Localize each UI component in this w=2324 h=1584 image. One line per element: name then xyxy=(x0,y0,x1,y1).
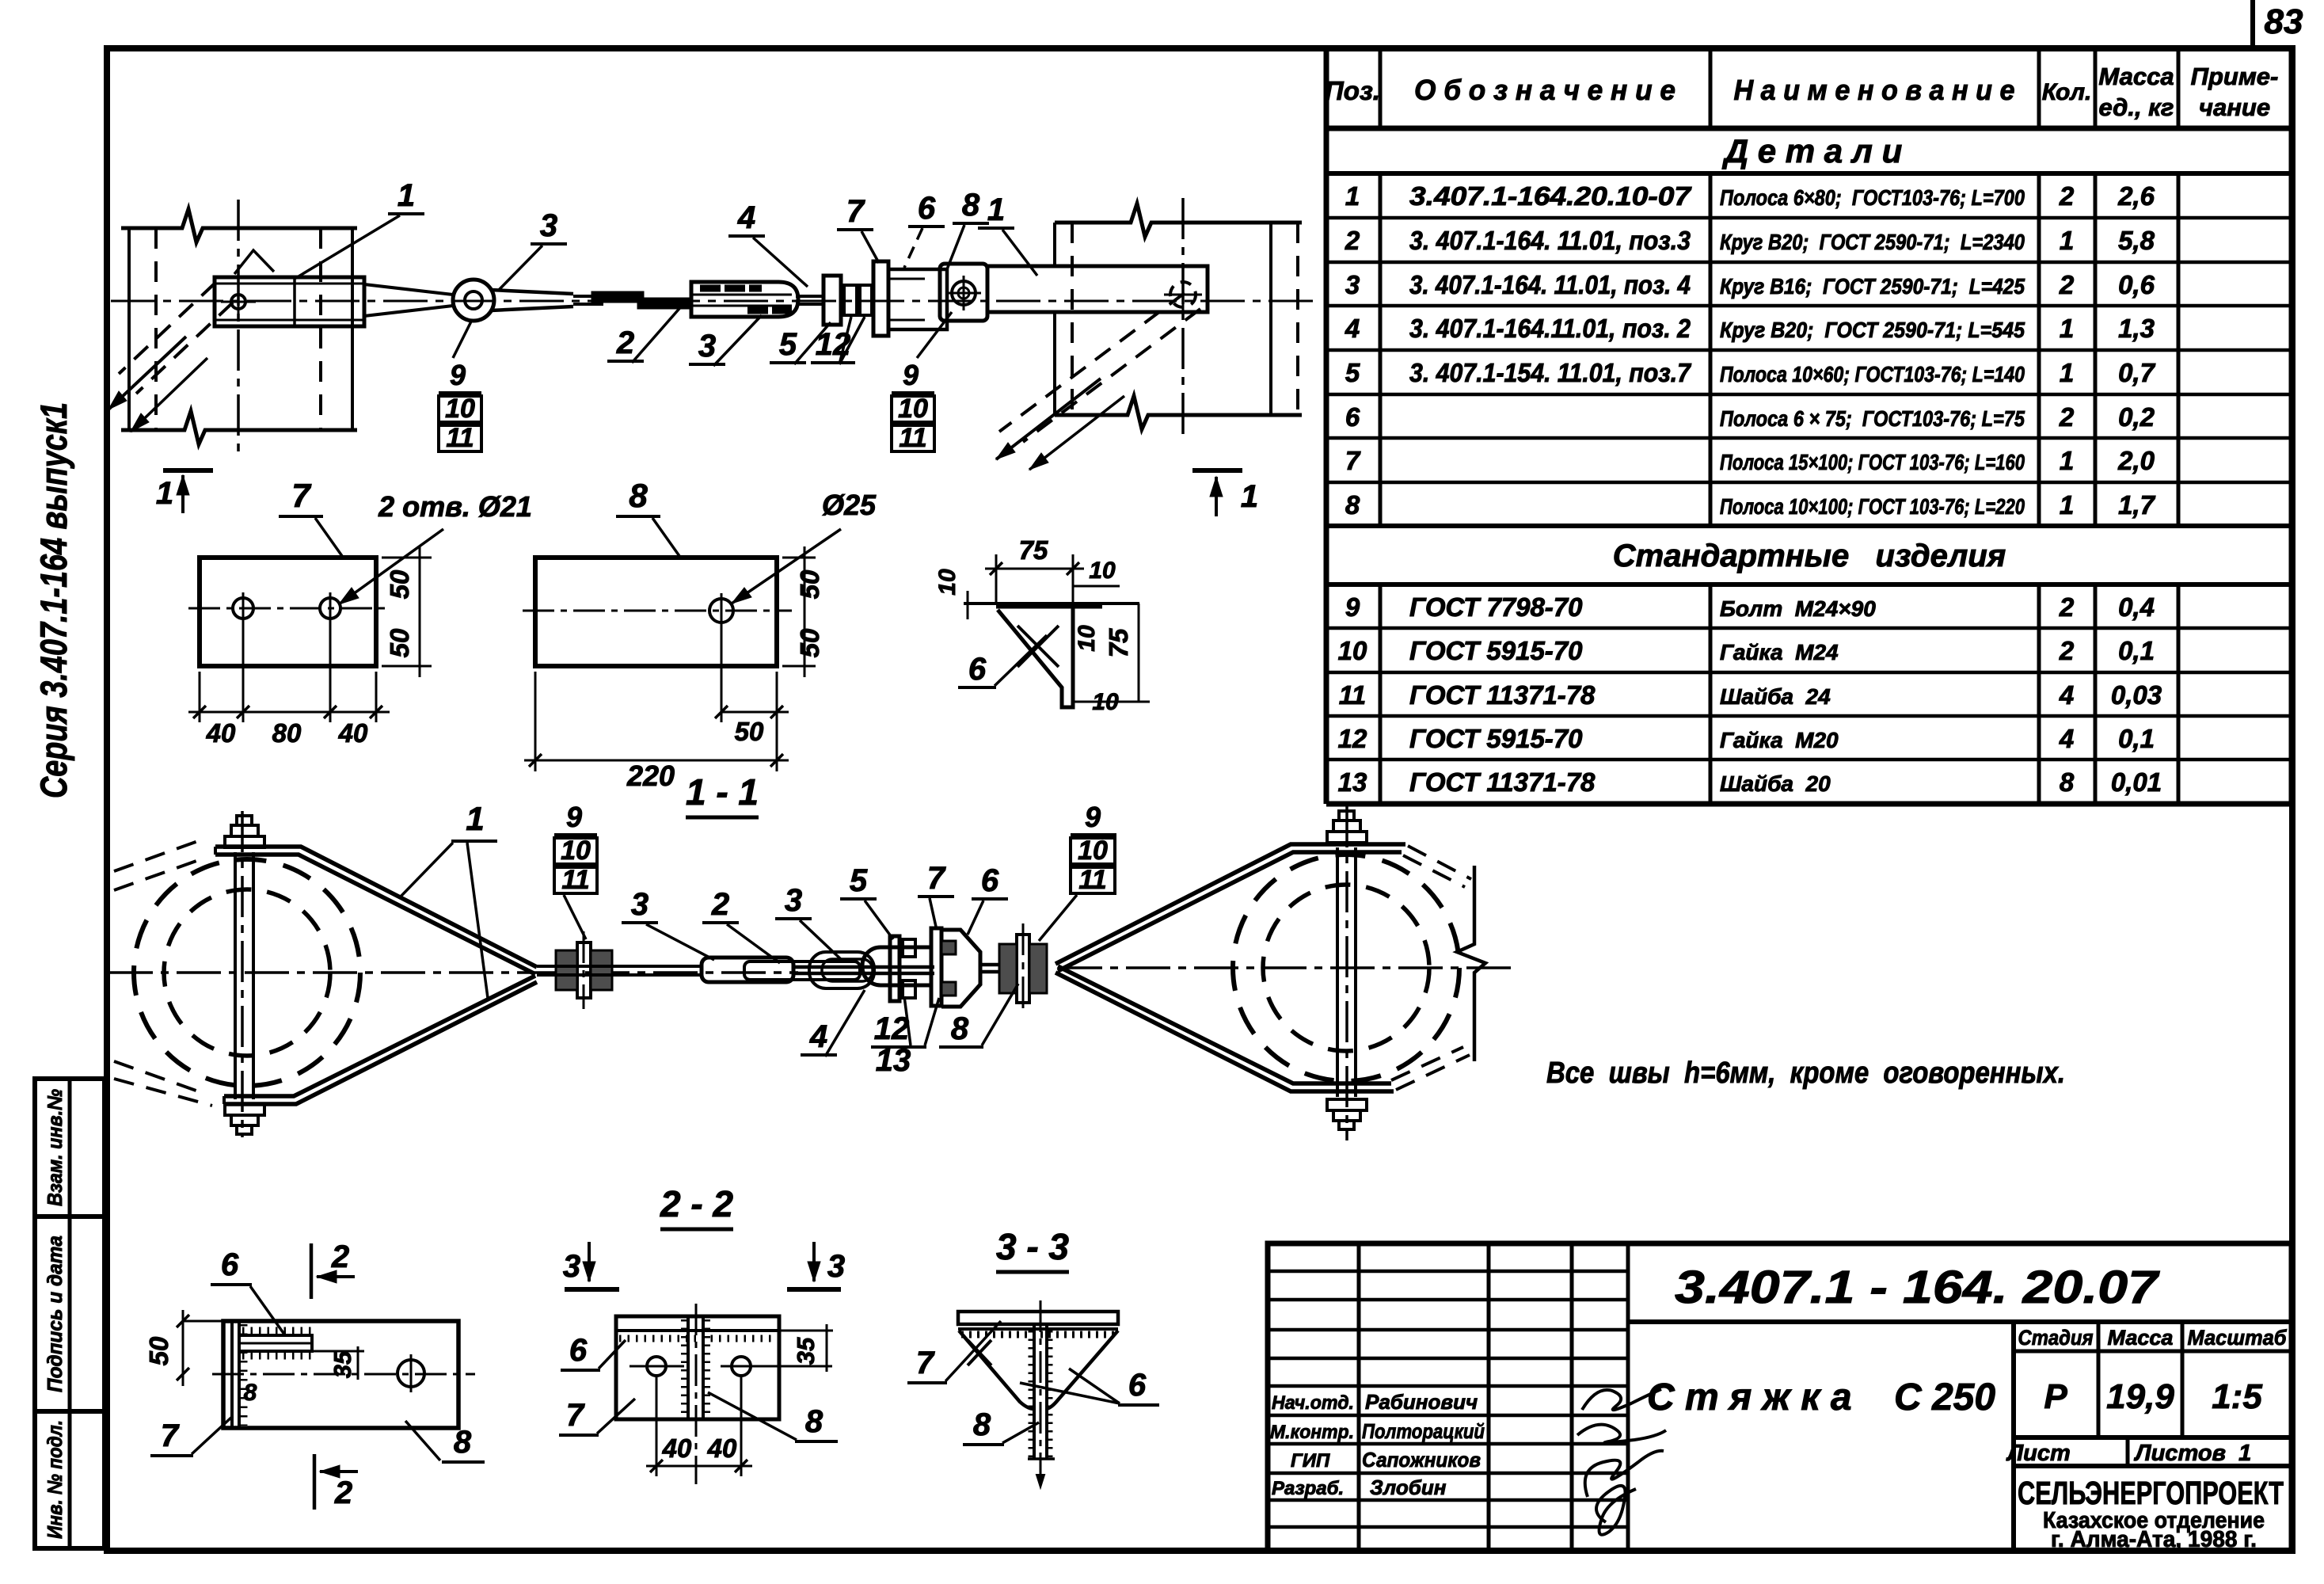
svg-text:5,8: 5,8 xyxy=(2118,226,2155,255)
svg-text:8: 8 xyxy=(951,1011,969,1046)
svg-text:10: 10 xyxy=(1338,636,1367,665)
svg-text:Гайка М20: Гайка М20 xyxy=(1720,728,1839,752)
svg-text:7: 7 xyxy=(846,194,865,229)
svg-text:3: 3 xyxy=(563,1249,580,1284)
svg-text:6: 6 xyxy=(1345,402,1360,432)
svg-text:3. 407.1-164. 11.01, поз. 4: 3. 407.1-164. 11.01, поз. 4 xyxy=(1409,270,1691,299)
svg-text:8: 8 xyxy=(1345,490,1360,520)
svg-text:С т я ж к а С 250: С т я ж к а С 250 xyxy=(1647,1376,1995,1418)
svg-text:Взам. инв.№: Взам. инв.№ xyxy=(43,1089,67,1206)
svg-text:35: 35 xyxy=(792,1337,820,1365)
svg-text:8: 8 xyxy=(629,477,648,514)
svg-text:3 - 3: 3 - 3 xyxy=(996,1226,1069,1267)
svg-text:8: 8 xyxy=(805,1404,823,1439)
svg-text:5: 5 xyxy=(850,863,868,898)
svg-text:1:5: 1:5 xyxy=(2212,1377,2262,1416)
svg-text:220: 220 xyxy=(626,760,675,792)
svg-text:11: 11 xyxy=(1339,680,1366,710)
svg-text:40: 40 xyxy=(338,718,368,748)
svg-text:8: 8 xyxy=(2060,767,2075,797)
svg-text:2 отв. Ø21: 2 отв. Ø21 xyxy=(378,490,532,523)
svg-text:6: 6 xyxy=(569,1333,588,1368)
svg-text:80: 80 xyxy=(272,718,302,748)
svg-text:3: 3 xyxy=(1345,270,1360,299)
svg-text:50: 50 xyxy=(795,628,824,657)
svg-text:83: 83 xyxy=(2265,2,2303,41)
svg-text:1 - 1: 1 - 1 xyxy=(686,771,759,813)
svg-text:50: 50 xyxy=(795,569,824,599)
svg-text:ГИП: ГИП xyxy=(1291,1450,1330,1472)
svg-text:Полторацкий: Полторацкий xyxy=(1362,1419,1485,1443)
svg-text:5: 5 xyxy=(779,327,797,362)
svg-text:50: 50 xyxy=(385,569,414,599)
svg-text:10: 10 xyxy=(1078,836,1108,866)
svg-text:О б о з н а ч е н и е: О б о з н а ч е н и е xyxy=(1414,74,1675,106)
svg-text:Круг В20; ГОСТ 2590-71; L=545: Круг В20; ГОСТ 2590-71; L=545 xyxy=(1720,318,2025,342)
svg-text:Полоса 6×80; ГОСТ103-76; L=70: Полоса 6×80; ГОСТ103-76; L=700 xyxy=(1720,185,2025,210)
svg-text:75: 75 xyxy=(1019,535,1048,565)
svg-text:1: 1 xyxy=(2060,314,2074,343)
svg-text:2: 2 xyxy=(331,1239,349,1274)
svg-text:Стандартные изделия: Стандартные изделия xyxy=(1613,539,2006,573)
svg-text:Стадия: Стадия xyxy=(2018,1326,2094,1350)
svg-text:0,01: 0,01 xyxy=(2111,767,2162,797)
svg-text:1: 1 xyxy=(2060,446,2074,475)
svg-text:2: 2 xyxy=(1345,226,1360,255)
svg-text:2: 2 xyxy=(711,887,729,922)
svg-text:3: 3 xyxy=(631,887,649,922)
svg-text:Рабинович: Рабинович xyxy=(1365,1390,1478,1414)
svg-text:13: 13 xyxy=(876,1043,911,1078)
svg-text:1: 1 xyxy=(987,192,1005,227)
svg-text:12: 12 xyxy=(874,1011,910,1046)
svg-text:35: 35 xyxy=(329,1350,356,1378)
svg-text:Круг В16; ГОСТ 2590-71; L=42: Круг В16; ГОСТ 2590-71; L=425 xyxy=(1720,274,2025,299)
svg-text:3: 3 xyxy=(827,1249,845,1284)
svg-text:2,6: 2,6 xyxy=(2117,181,2155,211)
svg-text:1,3: 1,3 xyxy=(2118,314,2155,343)
svg-text:2: 2 xyxy=(334,1475,352,1510)
svg-text:7: 7 xyxy=(291,477,311,514)
svg-text:10: 10 xyxy=(1074,625,1100,652)
svg-text:ед., кг: ед., кг xyxy=(2099,93,2174,121)
svg-text:ГОСТ 5915-70: ГОСТ 5915-70 xyxy=(1409,724,1583,753)
svg-text:7: 7 xyxy=(161,1418,180,1453)
svg-text:3. 407.1-164.11.01, поз. 2: 3. 407.1-164.11.01, поз. 2 xyxy=(1409,314,1691,343)
svg-text:2 - 2: 2 - 2 xyxy=(660,1183,733,1224)
svg-text:Д е т а л и: Д е т а л и xyxy=(1722,132,1903,169)
svg-text:3: 3 xyxy=(540,208,557,243)
svg-text:Масса: Масса xyxy=(2098,63,2174,90)
svg-text:Н а и м е н о в а н и е: Н а и м е н о в а н и е xyxy=(1734,74,2015,106)
svg-text:Разраб.: Разраб. xyxy=(1272,1478,1344,1499)
svg-text:6: 6 xyxy=(918,191,936,226)
svg-text:Злобин: Злобин xyxy=(1370,1475,1447,1499)
svg-text:40: 40 xyxy=(707,1434,737,1463)
svg-text:9: 9 xyxy=(1085,801,1101,833)
svg-text:3.407.1-164.20.10-07: 3.407.1-164.20.10-07 xyxy=(1409,181,1692,211)
svg-text:4: 4 xyxy=(737,200,755,235)
svg-text:Нач.отд.: Нач.отд. xyxy=(1272,1392,1354,1414)
svg-text:3. 407.1-164. 11.01, поз.3: 3. 407.1-164. 11.01, поз.3 xyxy=(1409,226,1691,255)
svg-text:3.407.1 - 164. 20.07: 3.407.1 - 164. 20.07 xyxy=(1675,1262,2160,1313)
svg-text:1: 1 xyxy=(2060,358,2074,387)
svg-text:Приме-: Приме- xyxy=(2191,63,2279,90)
svg-text:10: 10 xyxy=(898,394,928,424)
svg-text:12: 12 xyxy=(1338,724,1367,753)
svg-text:1: 1 xyxy=(397,178,415,213)
svg-text:4: 4 xyxy=(1345,314,1360,343)
svg-text:4: 4 xyxy=(2059,724,2074,753)
svg-text:8: 8 xyxy=(973,1407,991,1442)
svg-text:4: 4 xyxy=(2059,680,2074,710)
svg-text:Инв. № подл.: Инв. № подл. xyxy=(43,1420,67,1539)
svg-text:2: 2 xyxy=(2059,181,2075,211)
svg-text:11: 11 xyxy=(446,423,474,453)
svg-text:Кол.: Кол. xyxy=(2042,79,2092,105)
svg-text:Болт М24×90: Болт М24×90 xyxy=(1720,596,1876,621)
svg-text:1: 1 xyxy=(2060,490,2074,520)
svg-text:75: 75 xyxy=(1104,628,1133,657)
svg-text:Подпись и дата: Подпись и дата xyxy=(43,1236,67,1392)
svg-text:1: 1 xyxy=(2060,226,2074,255)
svg-text:6: 6 xyxy=(221,1247,239,1282)
svg-text:Шайба 20: Шайба 20 xyxy=(1720,771,1831,796)
svg-text:8: 8 xyxy=(962,188,980,223)
svg-text:9: 9 xyxy=(566,801,582,833)
svg-text:Масштаб: Масштаб xyxy=(2188,1326,2288,1350)
svg-text:2: 2 xyxy=(2059,636,2075,665)
svg-text:10: 10 xyxy=(561,836,591,866)
svg-text:М.контр.: М.контр. xyxy=(1270,1422,1354,1443)
svg-text:ГОСТ 7798-70: ГОСТ 7798-70 xyxy=(1409,592,1583,622)
svg-text:4: 4 xyxy=(809,1019,827,1054)
svg-text:9: 9 xyxy=(450,359,466,391)
svg-text:6: 6 xyxy=(981,863,999,898)
svg-text:40: 40 xyxy=(662,1434,692,1463)
svg-text:Р: Р xyxy=(2044,1377,2067,1416)
svg-text:2: 2 xyxy=(616,326,634,360)
svg-text:Масса: Масса xyxy=(2108,1326,2174,1350)
svg-text:5: 5 xyxy=(1345,358,1360,387)
svg-text:ГОСТ 11371-78: ГОСТ 11371-78 xyxy=(1409,767,1596,797)
svg-text:50: 50 xyxy=(144,1336,173,1365)
svg-text:Полоса 10×100; ГОСТ 103-76; L=: Полоса 10×100; ГОСТ 103-76; L=220 xyxy=(1720,494,2025,519)
svg-text:г. Алма-Ата, 1988 г.: г. Алма-Ата, 1988 г. xyxy=(2051,1527,2257,1552)
svg-text:0,1: 0,1 xyxy=(2118,724,2155,753)
svg-text:Полоса 15×100; ГОСТ 103-76; L=: Полоса 15×100; ГОСТ 103-76; L=160 xyxy=(1720,450,2025,474)
svg-text:СЕЛЬЭНЕРГОПРОЕКТ: СЕЛЬЭНЕРГОПРОЕКТ xyxy=(2018,1475,2284,1511)
svg-text:7: 7 xyxy=(566,1398,585,1433)
svg-text:Лист: Лист xyxy=(2006,1441,2071,1466)
svg-text:ГОСТ 5915-70: ГОСТ 5915-70 xyxy=(1409,636,1583,665)
svg-text:0,4: 0,4 xyxy=(2118,592,2155,622)
svg-text:чание: чание xyxy=(2199,93,2270,121)
svg-text:50: 50 xyxy=(385,628,414,657)
svg-text:8: 8 xyxy=(244,1380,257,1406)
svg-text:Круг В20; ГОСТ 2590-71; L=23: Круг В20; ГОСТ 2590-71; L=2340 xyxy=(1720,230,2025,254)
svg-text:6: 6 xyxy=(968,652,987,687)
svg-text:10: 10 xyxy=(934,569,960,596)
svg-text:Серия 3.407.1-164 выпуск1: Серия 3.407.1-164 выпуск1 xyxy=(32,402,74,798)
svg-text:2: 2 xyxy=(2059,592,2075,622)
svg-text:11: 11 xyxy=(1078,865,1106,895)
svg-text:7: 7 xyxy=(1345,446,1361,475)
svg-text:13: 13 xyxy=(1338,767,1367,797)
svg-text:3: 3 xyxy=(785,883,802,918)
svg-text:Гайка М24: Гайка М24 xyxy=(1720,640,1839,664)
svg-text:7: 7 xyxy=(927,861,946,896)
svg-text:ГОСТ 11371-78: ГОСТ 11371-78 xyxy=(1409,680,1596,710)
svg-text:Поз.: Поз. xyxy=(1325,76,1380,105)
svg-text:3. 407.1-154. 11.01, поз.7: 3. 407.1-154. 11.01, поз.7 xyxy=(1409,358,1691,387)
svg-text:2: 2 xyxy=(2059,270,2075,299)
svg-text:0,2: 0,2 xyxy=(2118,402,2155,432)
svg-text:1: 1 xyxy=(1345,181,1360,211)
svg-text:10: 10 xyxy=(1089,558,1116,584)
svg-text:11: 11 xyxy=(561,865,589,895)
svg-text:10: 10 xyxy=(445,394,475,424)
svg-text:Все швы h=6мм, кроме огово: Все швы h=6мм, кроме оговоренных. xyxy=(1546,1057,2065,1090)
svg-text:2: 2 xyxy=(2059,402,2075,432)
svg-text:19,9: 19,9 xyxy=(2106,1377,2174,1416)
svg-text:Полоса 6 × 75; ГОСТ103-76; L=: Полоса 6 × 75; ГОСТ103-76; L=75 xyxy=(1720,406,2025,431)
svg-text:10: 10 xyxy=(1092,689,1119,715)
svg-text:Шайба 24: Шайба 24 xyxy=(1720,684,1831,709)
svg-text:11: 11 xyxy=(899,423,926,453)
svg-text:Сапожников: Сапожников xyxy=(1362,1448,1481,1472)
svg-text:1: 1 xyxy=(466,800,484,837)
svg-text:7: 7 xyxy=(916,1346,935,1380)
svg-text:2,0: 2,0 xyxy=(2117,446,2155,475)
svg-text:6: 6 xyxy=(1128,1368,1147,1403)
svg-text:1: 1 xyxy=(1241,479,1258,514)
svg-text:8: 8 xyxy=(454,1425,472,1460)
svg-text:1,7: 1,7 xyxy=(2118,490,2156,520)
svg-text:0,6: 0,6 xyxy=(2118,270,2155,299)
svg-text:Листов 1: Листов 1 xyxy=(2134,1441,2252,1466)
svg-text:3: 3 xyxy=(698,329,716,364)
svg-text:Ø25: Ø25 xyxy=(822,489,877,521)
svg-text:50: 50 xyxy=(735,717,764,746)
svg-text:0,1: 0,1 xyxy=(2118,636,2155,665)
svg-text:Полоса 10×60; ГОСТ103-76; L=14: Полоса 10×60; ГОСТ103-76; L=140 xyxy=(1720,362,2025,386)
svg-text:0,03: 0,03 xyxy=(2111,680,2162,710)
svg-text:9: 9 xyxy=(1345,592,1360,622)
svg-text:0,7: 0,7 xyxy=(2118,358,2156,387)
svg-text:9: 9 xyxy=(903,359,919,391)
svg-text:1: 1 xyxy=(156,476,173,511)
svg-text:40: 40 xyxy=(206,718,236,748)
